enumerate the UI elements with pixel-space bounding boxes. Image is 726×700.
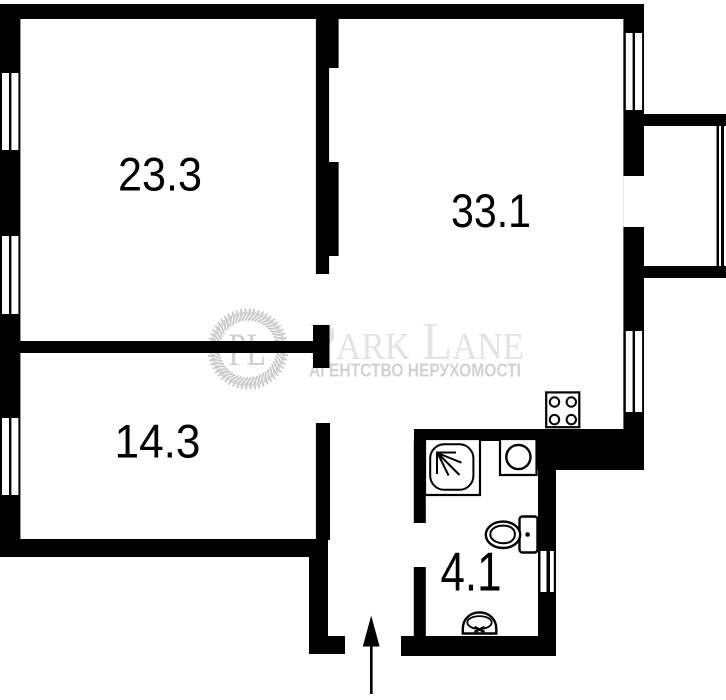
- svg-text:14.3: 14.3: [115, 415, 201, 468]
- svg-text:АГЕНТСТВО НЕРУХОМОСТІ: АГЕНТСТВО НЕРУХОМОСТІ: [309, 361, 521, 381]
- svg-text:33.1: 33.1: [451, 184, 531, 237]
- svg-text:23.3: 23.3: [118, 148, 202, 201]
- svg-text:4.1: 4.1: [441, 541, 502, 603]
